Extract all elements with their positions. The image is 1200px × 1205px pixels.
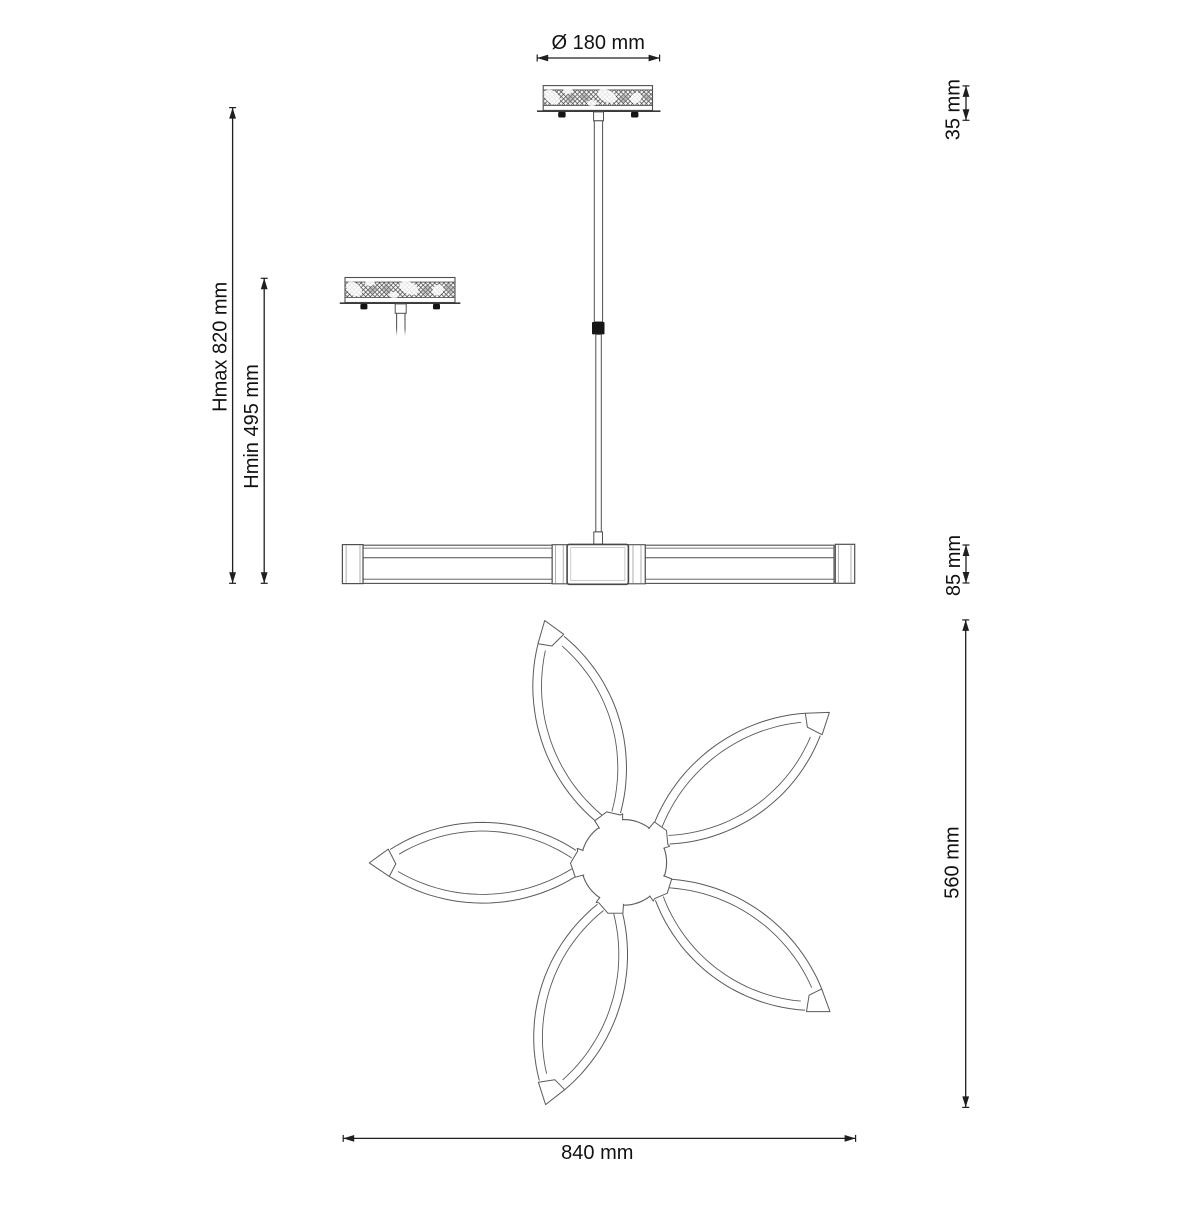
svg-text:Hmax 820 mm: Hmax 820 mm bbox=[209, 282, 231, 412]
svg-text:560 mm: 560 mm bbox=[942, 826, 964, 898]
svg-text:35 mm: 35 mm bbox=[942, 79, 964, 140]
svg-text:840 mm: 840 mm bbox=[561, 1142, 633, 1164]
svg-text:85 mm: 85 mm bbox=[943, 535, 965, 596]
svg-text:Ø 180 mm: Ø 180 mm bbox=[552, 32, 645, 54]
svg-text:Hmin 495 mm: Hmin 495 mm bbox=[241, 364, 263, 488]
